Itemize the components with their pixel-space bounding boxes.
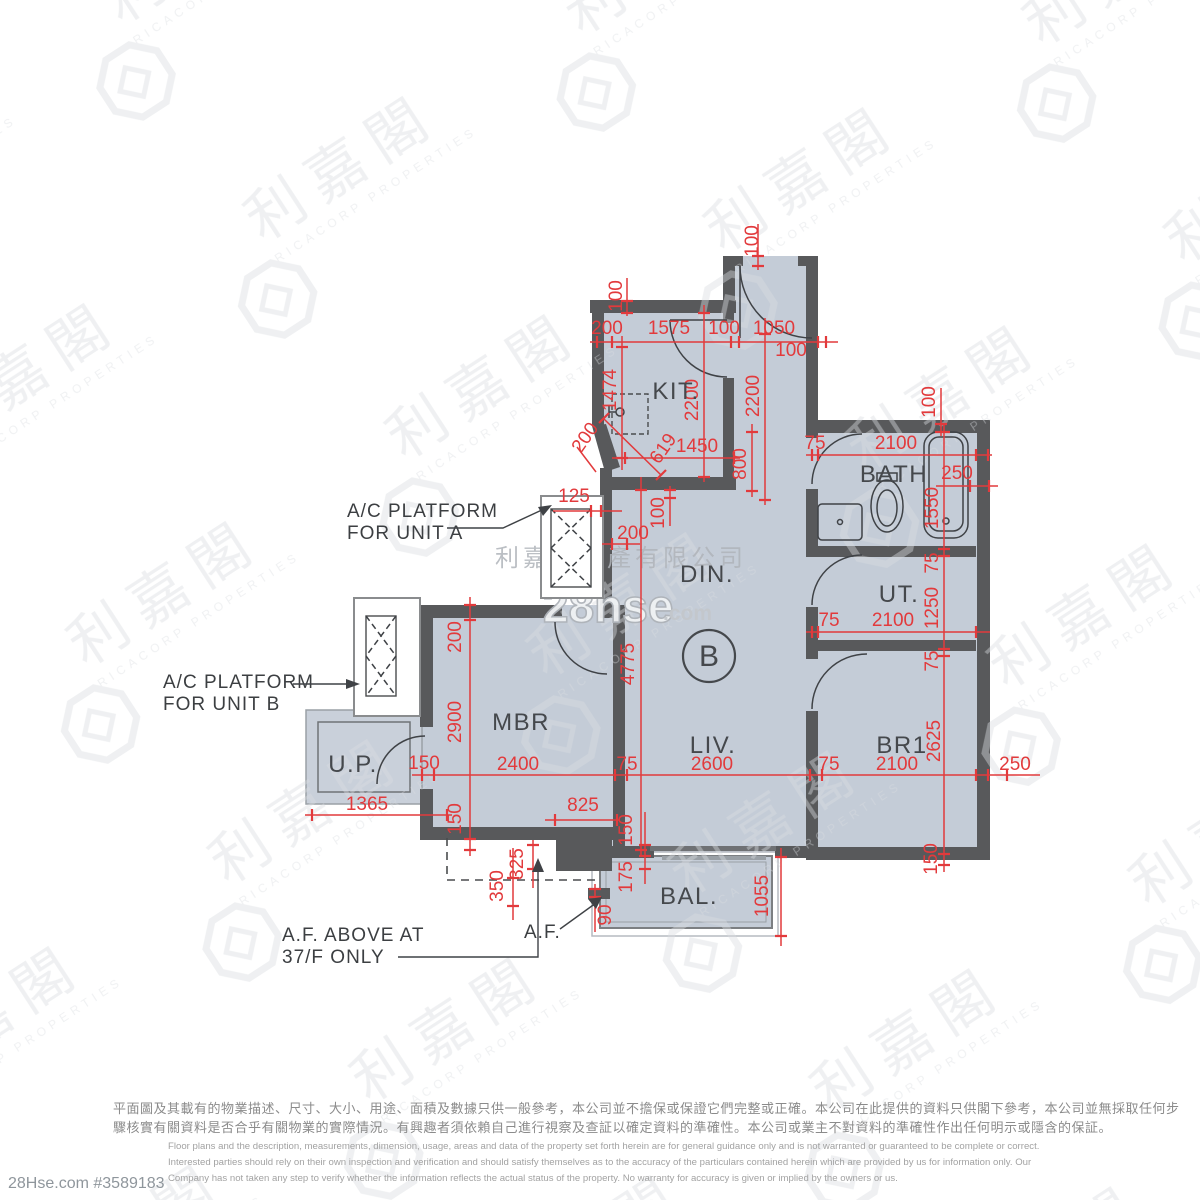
disclaimer-chinese: 平面圖及其載有的物業描述、尺寸、大小、用途、面積及數據只供一般參考，本公司並不擔… (113, 1099, 1180, 1137)
dim-entry-depth: 100 (742, 225, 763, 257)
dim-mbr-200: 200 (445, 621, 466, 653)
unit-badge-letter: B (699, 640, 719, 673)
room-label-kitchen: KIT. (652, 378, 699, 405)
dim-right-1550: 1550 (922, 487, 943, 529)
dim-right-1250: 1250 (922, 587, 943, 629)
disclaimer-en-line3: Company has not taken any step to verify… (168, 1171, 1039, 1187)
dim-bath-75: 75 (804, 433, 825, 454)
dim-af-90: 90 (595, 904, 616, 925)
dim-af-325: 325 (507, 848, 528, 880)
dim-top-1050: 1050 (753, 318, 795, 339)
room-label-bath: BATH (860, 461, 928, 488)
dim-af-350: 350 (487, 870, 508, 902)
dim-right-100: 100 (919, 386, 940, 418)
disclaimer-en-line1: Floor plans and the description, measure… (168, 1139, 1039, 1155)
listing-reference: 28Hse.com #3589183 (8, 1175, 165, 1193)
dim-main-250: 250 (999, 754, 1031, 775)
dim-up-1365: 1365 (346, 794, 388, 815)
dim-top-100a: 100 (708, 318, 740, 339)
ac-platform-a-label-line1: A/C PLATFORM (347, 501, 498, 522)
disclaimer-en-line2: Interested parties should rely on their … (168, 1155, 1039, 1171)
dim-din-200: 200 (617, 523, 649, 544)
dim-bath-2100: 2100 (875, 433, 917, 454)
disclaimer-english: Floor plans and the description, measure… (168, 1139, 1039, 1187)
room-label-utility: UT. (879, 581, 920, 608)
dim-right-250: 250 (941, 463, 973, 484)
room-label-utility-platform: U.P. (328, 751, 378, 778)
dim-mbr-825: 825 (567, 795, 599, 816)
dim-kit-wall: 100 (606, 280, 627, 312)
dim-mbr-150: 150 (445, 803, 466, 835)
dim-bal-175: 175 (616, 861, 637, 893)
af-label: A.F. (524, 922, 561, 943)
dim-din-800: 800 (730, 448, 751, 480)
dim-main-2400: 2400 (497, 754, 539, 775)
room-label-dining: DIN. (680, 561, 734, 588)
floorplan-page: 利嘉閣 RICACORP PROPERTIES (0, 0, 1200, 1200)
dim-ut-2100: 2100 (872, 610, 914, 631)
dim-entry-2200: 2200 (743, 375, 764, 417)
dim-top-100b: 100 (775, 340, 807, 361)
room-label-master-bedroom: MBR (492, 709, 550, 736)
floorplan-drawing: 利嘉閣 RICACORP PROPERTIES (0, 0, 1200, 1200)
dim-kit-1474: 1474 (600, 368, 621, 411)
dim-main-75a: 75 (616, 754, 637, 775)
ac-platform-b (354, 598, 420, 716)
dim-top-1575: 1575 (648, 318, 690, 339)
room-label-living: LIV. (690, 732, 737, 759)
dim-mbr-2900: 2900 (445, 701, 466, 743)
af-above-label-line1: A.F. ABOVE AT (282, 925, 425, 946)
room-label-balcony: BAL. (660, 883, 718, 910)
ac-platform-a-label-line2: FOR UNIT A (347, 523, 463, 544)
dim-bal-150: 150 (616, 814, 637, 846)
dim-right-75a: 75 (922, 552, 943, 573)
dim-ut-75: 75 (818, 610, 839, 631)
dim-right-150: 150 (921, 843, 942, 875)
dim-main-150: 150 (408, 753, 440, 774)
dim-bal-1055: 1055 (752, 875, 773, 917)
dim-din-100: 100 (648, 497, 669, 529)
disclaimer-zh-line1: 平面圖及其載有的物業描述、尺寸、大小、用途、面積及數據只供一般參考，本公司並不擔… (113, 1099, 1180, 1118)
watermark-28hse-com: .com (663, 602, 712, 625)
dim-right-75b: 75 (922, 650, 943, 671)
dim-top-200: 200 (591, 318, 623, 339)
dim-main-75b: 75 (818, 754, 839, 775)
room-label-bedroom1: BR1 (876, 732, 927, 759)
ac-platform-b-label-line1: A/C PLATFORM (163, 672, 314, 693)
dim-kit-1450: 1450 (676, 436, 718, 457)
ac-platform-b-label-line2: FOR UNIT B (163, 694, 280, 715)
disclaimer-zh-line2: 驟核實有關資料是否合乎有關物業的實際情況。有興趣者須依賴自己進行視察及查証以確定… (113, 1118, 1180, 1137)
af-above-label-line2: 37/F ONLY (282, 947, 385, 968)
dim-din-4775: 4775 (618, 643, 639, 685)
dim-acp-125: 125 (558, 486, 590, 507)
